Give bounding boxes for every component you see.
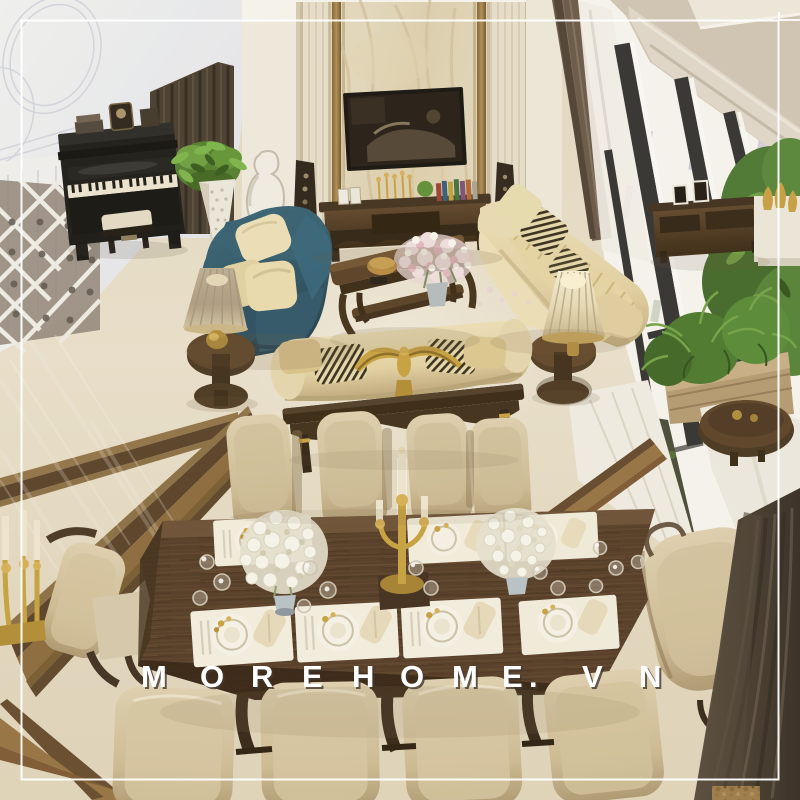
svg-text:M: M (452, 659, 478, 694)
svg-text:M: M (141, 659, 167, 694)
svg-text:O: O (400, 659, 424, 694)
svg-text:.: . (529, 659, 538, 694)
svg-text:R: R (251, 659, 273, 694)
svg-text:O: O (200, 659, 224, 694)
svg-text:E: E (502, 659, 523, 694)
svg-text:V: V (582, 659, 603, 694)
svg-text:H: H (352, 659, 374, 694)
svg-text:E: E (302, 659, 323, 694)
svg-text:N: N (639, 659, 661, 694)
